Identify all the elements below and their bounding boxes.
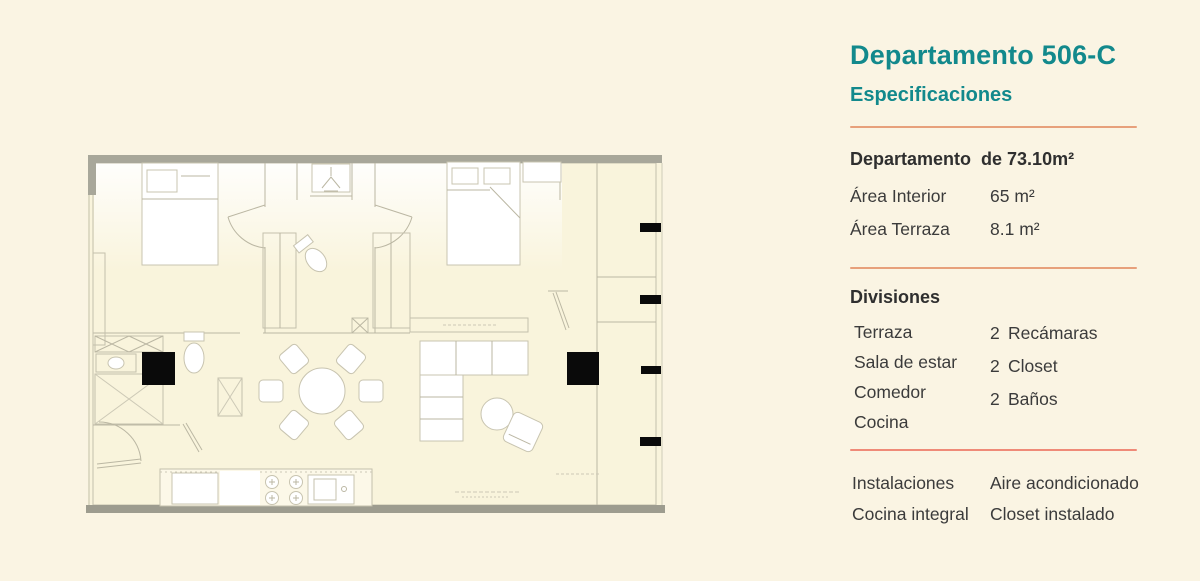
kitchen-sink <box>308 475 354 504</box>
kitchen-counter <box>160 469 372 506</box>
area-label: Área Interior <box>850 186 946 206</box>
column-black-right <box>567 352 599 385</box>
inst-value: Aire acondicionado <box>990 473 1139 494</box>
vestibule-fixture <box>312 164 350 192</box>
label: Baños <box>1008 389 1058 409</box>
divider <box>850 126 1137 128</box>
label: Recámaras <box>1008 323 1097 343</box>
inst-value: Closet instalado <box>990 504 1115 525</box>
instalaciones-row: Cocina integral Closet instalado <box>852 504 1144 525</box>
facade-marker <box>641 366 661 374</box>
top-wall <box>88 155 662 163</box>
label: Closet <box>1008 356 1058 376</box>
area-value: 8.1 m² <box>990 219 1040 240</box>
list-item: Cocina <box>854 407 957 437</box>
summary-heading: Departamentode 73.10m² <box>850 149 1074 170</box>
count: 2 <box>990 317 1008 350</box>
top-left-wall-stub <box>88 155 96 195</box>
inst-label: Cocina integral <box>852 504 969 524</box>
divisiones-right-list: 2Recámaras 2Closet 2Baños <box>990 317 1097 416</box>
list-item: 2Closet <box>990 350 1097 383</box>
page-subtitle: Especificaciones <box>850 84 1012 107</box>
bedroom2-shelf <box>523 162 561 182</box>
divider <box>850 449 1137 451</box>
divisiones-left-list: Terraza Sala de estar Comedor Cocina <box>854 317 957 437</box>
toilet-bath1 <box>184 332 204 373</box>
refrigerator <box>220 471 260 505</box>
count: 2 <box>990 350 1008 383</box>
area-row: Área Terraza 8.1 m² <box>850 219 1142 240</box>
list-item: 2Recámaras <box>990 317 1097 350</box>
inst-label: Instalaciones <box>852 473 954 493</box>
list-item: Comedor <box>854 377 957 407</box>
facade-marker <box>640 223 661 232</box>
count: 2 <box>990 383 1008 416</box>
divider <box>850 267 1137 269</box>
dishwasher <box>172 473 218 504</box>
floor-plan <box>85 148 667 520</box>
column-black-left <box>142 352 175 385</box>
summary-value: de 73.10m² <box>981 149 1074 169</box>
bed-master <box>142 163 218 265</box>
area-label: Área Terraza <box>850 219 950 239</box>
list-item: Sala de estar <box>854 347 957 377</box>
page-title: Departamento 506-C <box>850 40 1116 71</box>
summary-label: Departamento <box>850 149 971 169</box>
divisiones-heading: Divisiones <box>850 287 940 308</box>
list-item: 2Baños <box>990 383 1097 416</box>
bed-secondary <box>447 162 520 265</box>
facade-marker <box>640 437 661 446</box>
dining-chair <box>259 380 283 402</box>
list-item: Terraza <box>854 317 957 347</box>
area-value: 65 m² <box>990 186 1035 207</box>
instalaciones-row: Instalaciones Aire acondicionado <box>852 473 1144 494</box>
dining-chair <box>359 380 383 402</box>
facade-marker <box>640 295 661 304</box>
area-row: Área Interior 65 m² <box>850 186 1142 207</box>
